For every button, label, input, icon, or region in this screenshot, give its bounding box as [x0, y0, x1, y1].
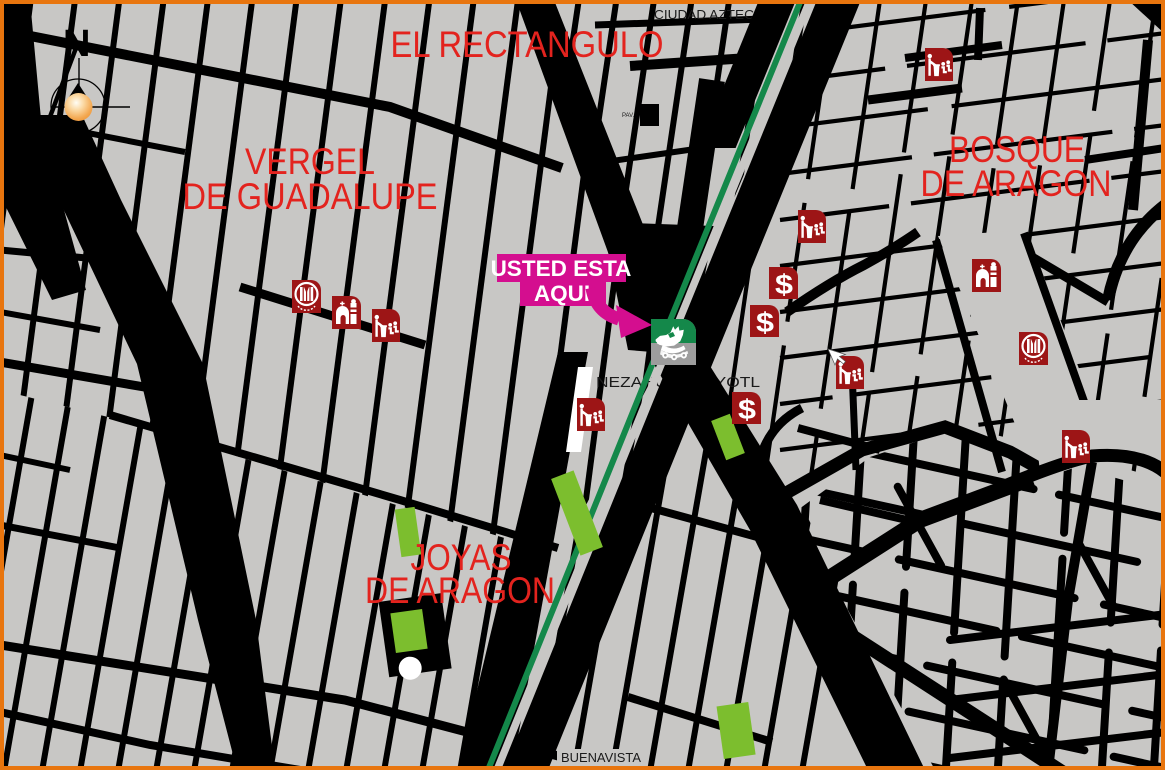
- svg-text:USTED ESTA: USTED ESTA: [491, 256, 632, 281]
- svg-text:$: $: [775, 269, 793, 300]
- svg-text:N: N: [63, 23, 90, 65]
- svg-text:DE GUADALUPE: DE GUADALUPE: [183, 176, 438, 217]
- svg-text:$: $: [756, 307, 774, 338]
- svg-text:PAV.: PAV.: [622, 113, 635, 119]
- svg-text:CIUDAD AZTECA: CIUDAD AZTECA: [654, 7, 763, 22]
- svg-text:DE ARAGON: DE ARAGON: [365, 570, 555, 611]
- svg-text:$: $: [738, 394, 756, 425]
- svg-text:BUENAVISTA: BUENAVISTA: [561, 750, 641, 765]
- svg-text:DE ARAGON: DE ARAGON: [921, 163, 1112, 204]
- svg-text:EL RECTANGULO: EL RECTANGULO: [391, 24, 664, 65]
- svg-text:AQUI: AQUI: [534, 281, 590, 306]
